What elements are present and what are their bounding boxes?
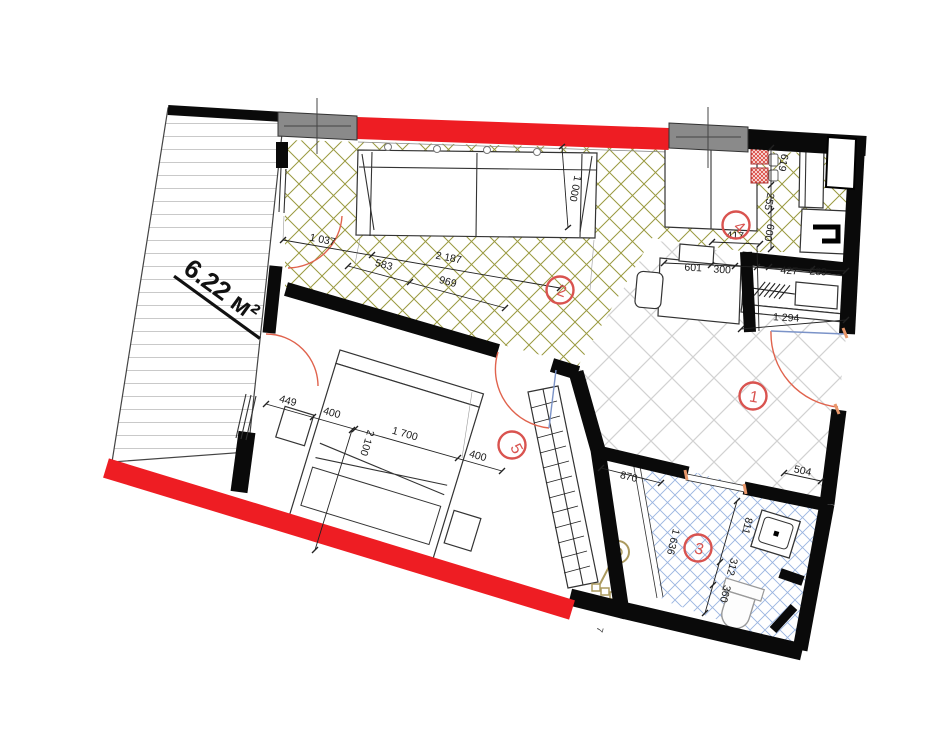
stove-burner-icon — [751, 168, 768, 183]
floor-plan-svg: 6.22 м² — [0, 0, 950, 740]
kitchen-hall-wall — [746, 252, 750, 332]
dim-kitchen-300: 300 — [713, 264, 731, 277]
bedside-table-right — [444, 510, 481, 551]
balcony-door-frame — [279, 168, 286, 213]
balcony-bedroom-door-arc — [266, 334, 318, 386]
window-fitting-icon — [484, 147, 491, 154]
balcony: 6.22 м² — [112, 108, 284, 462]
tall-cabinet — [799, 147, 824, 208]
dim-kitchen-427: 427 — [780, 265, 798, 278]
desk-chair — [634, 271, 663, 309]
window-fitting-icon — [534, 149, 541, 156]
kitchen-sink-basin — [769, 170, 778, 181]
balcony-top-wall — [168, 110, 284, 117]
window-fitting-icon — [434, 146, 441, 153]
dim-bath-870: 870 — [619, 469, 639, 485]
stray-label-7: 7 — [594, 626, 605, 633]
dim-bedroom-449: 449 — [278, 393, 298, 409]
room-badge-5: 5 — [499, 432, 526, 459]
window-fitting-icon — [385, 144, 392, 151]
entry-niche — [826, 137, 856, 189]
floor-plan-canvas: 6.22 м² — [0, 0, 950, 740]
dim-hall-1294: 1 294 — [773, 311, 800, 324]
dim-kitchen-289: 289 — [809, 266, 827, 279]
sofa — [356, 150, 597, 238]
dim-kitchen-601: 601 — [684, 262, 702, 275]
exterior-wall-top-red — [357, 128, 669, 139]
left-wall-mid — [269, 266, 276, 333]
hall-wardrobe-inner — [795, 282, 838, 309]
left-wall-pillar-bottom — [239, 432, 247, 492]
stove-burner-icon — [751, 148, 768, 164]
